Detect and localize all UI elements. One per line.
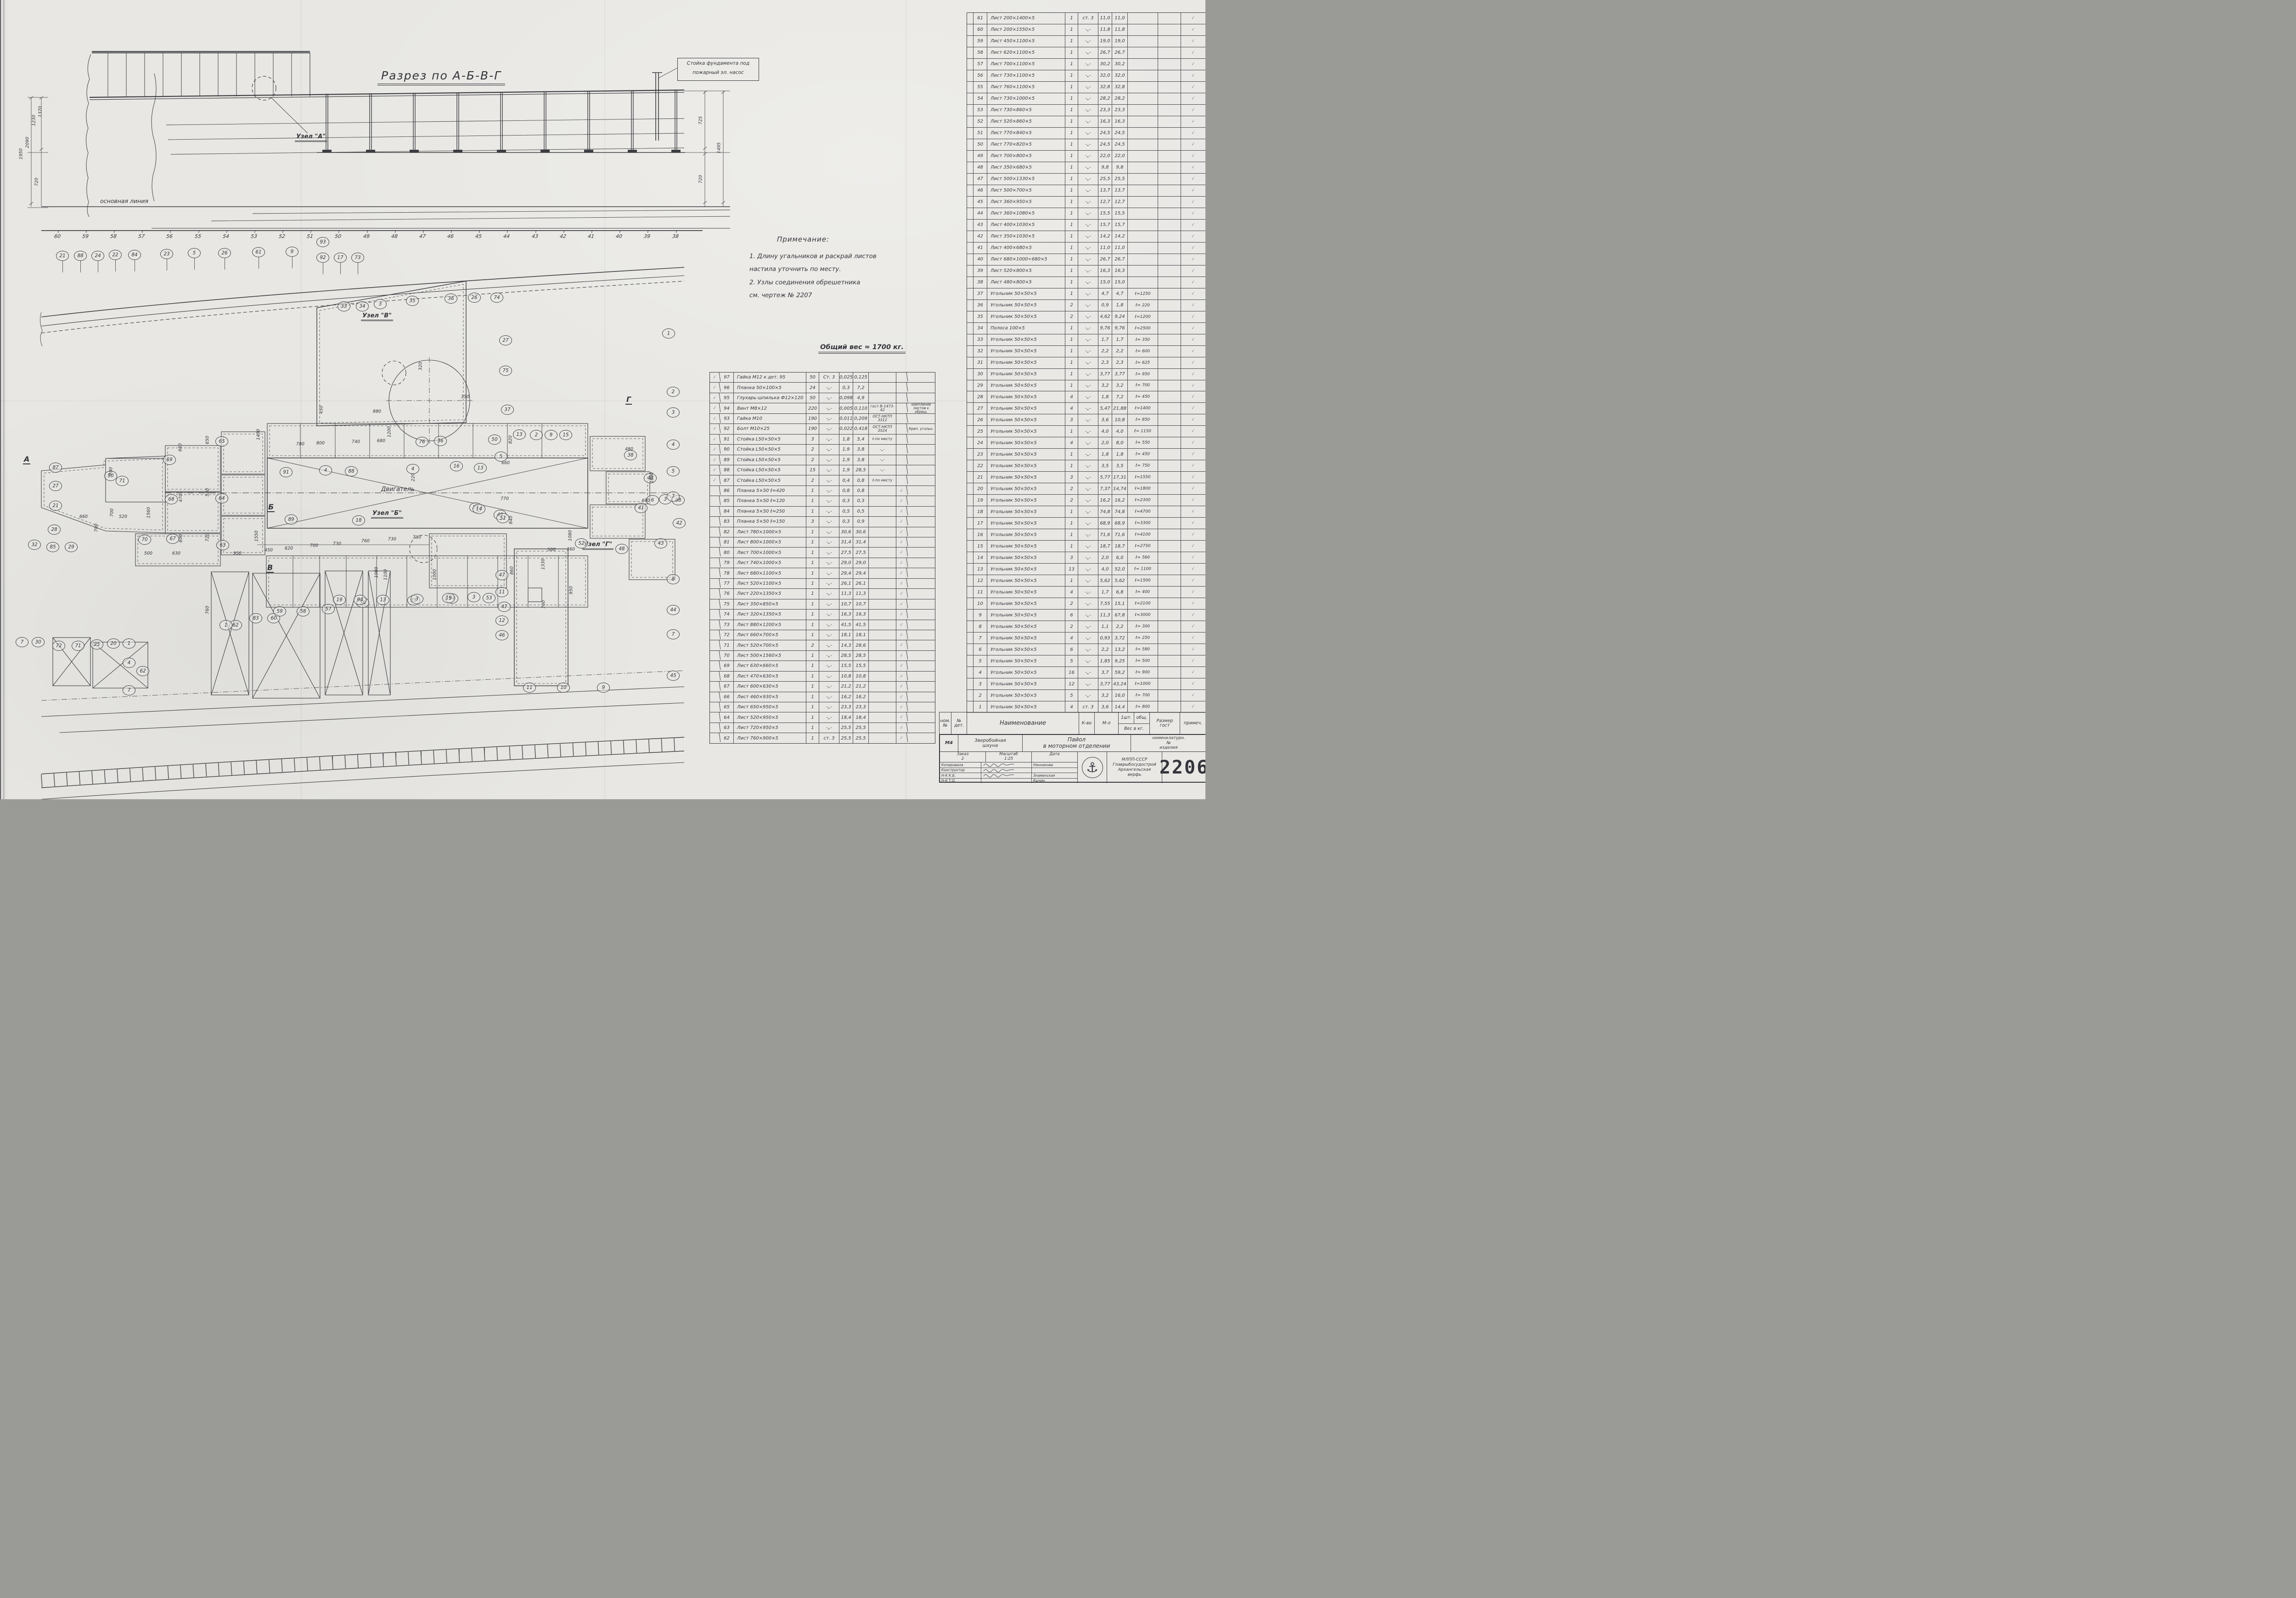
qty-cell: 1: [806, 579, 819, 588]
weight-one-cell: 26,7: [1098, 254, 1112, 265]
qty-cell: 1: [1065, 220, 1078, 231]
weight-one-cell: 25,5: [1098, 174, 1112, 185]
qty-cell: 1: [806, 682, 819, 691]
name-cell: Лист 650×950×5: [734, 702, 806, 712]
qty-cell: 1: [1065, 59, 1078, 70]
check-cell: ✓: [896, 536, 908, 548]
weight-total-cell: 3,2: [1112, 380, 1128, 391]
weight-total-cell: 14,4: [1112, 701, 1128, 712]
weight-total-cell: 25,5: [853, 723, 869, 733]
detail-number-cell: 76: [720, 589, 734, 599]
weight-one-cell: 1,1: [1098, 621, 1112, 632]
size-gost-cell: [1128, 93, 1158, 104]
part-callout: 64: [215, 493, 228, 503]
weight-total-cell: 26,1: [853, 579, 869, 588]
qty-cell: 1: [806, 507, 819, 516]
detail-number-cell: 53: [974, 105, 987, 116]
weight-one-cell: 2,2: [1098, 346, 1112, 357]
qty-cell: 1: [1065, 254, 1078, 265]
size-gost-cell: ℓ≈ 300: [1128, 621, 1158, 632]
size-gost-cell: ℓ≈ 560: [1128, 552, 1158, 563]
size-gost-cell: [1128, 231, 1158, 242]
note-cell: [1158, 678, 1181, 689]
weight-total-cell: 12,7: [1112, 197, 1128, 208]
weight-total-cell: 14,74: [1112, 483, 1128, 494]
weight-total-cell: 3,8: [853, 455, 869, 465]
check-cell: ✓: [896, 506, 908, 517]
name-cell: Лист 200×1400×5: [987, 13, 1065, 24]
detail-number-cell: 97: [720, 373, 734, 382]
size-gost-cell: ℓ≈1000: [1128, 678, 1158, 689]
detail-number-cell: 14: [974, 552, 987, 563]
detail-number-cell: 82: [720, 527, 734, 537]
qty-cell: 24: [806, 383, 819, 392]
part-callout: 19: [333, 595, 346, 605]
weight-total-cell: 22,0: [1112, 151, 1128, 162]
weight-total-cell: 3,77: [1112, 369, 1128, 380]
dimension-label: 720: [698, 175, 703, 183]
note-cell: [907, 507, 935, 516]
check-cell: ✓: [896, 701, 908, 713]
detail-number-cell: 64: [720, 712, 734, 722]
weight-one-cell: 16,3: [839, 610, 853, 619]
size-gost-cell: ℓ≈2750: [1128, 541, 1158, 552]
size-gost-cell: ℓ≈3000: [1128, 610, 1158, 621]
weight-one-cell: 3,77: [1098, 678, 1112, 689]
material-cell: -„-: [1078, 357, 1098, 368]
weight-total-cell: 5,4: [853, 435, 869, 444]
part-callout: 45: [667, 671, 680, 681]
note-cell: [1158, 357, 1181, 368]
material-cell: -„-: [819, 558, 839, 568]
dimension-label: 660: [178, 443, 183, 452]
qty-cell: 1: [1065, 449, 1078, 460]
name-cell: Стойка L50×50×5: [734, 455, 806, 465]
note-cell: [1158, 323, 1181, 334]
size-gost-cell: ℓ≈ 500: [1128, 655, 1158, 666]
weight-total-cell: 15,5: [853, 661, 869, 671]
dimension-label: 1080: [374, 567, 379, 578]
part-callout: 7: [16, 637, 28, 647]
name-cell: Лист 500×700×5: [987, 185, 1065, 196]
weight-one-cell: 15,5: [839, 661, 853, 671]
weight-total-cell: 0,8: [853, 475, 869, 485]
pos-cell: [967, 162, 974, 173]
part-callout: 36: [434, 436, 447, 446]
material-cell: -„-: [1078, 414, 1098, 425]
name-cell: Лист 400×680×5: [987, 243, 1065, 254]
detail-number-cell: 23: [974, 449, 987, 460]
size-gost-cell: [1128, 47, 1158, 58]
table-row: ✓ 95 Глухарь-шпилька Ф12×120 50 -„- 0,09…: [710, 393, 935, 403]
check-cell: ✓: [709, 434, 721, 445]
size-gost-cell: [869, 651, 896, 661]
note-line: 2. Узлы соединения обрешетника: [749, 276, 929, 289]
qty-cell: 1: [806, 548, 819, 557]
name-cell: Гайка М10: [734, 414, 806, 423]
qty-cell: 1: [806, 589, 819, 599]
size-gost-cell: [869, 373, 896, 382]
weight-total-cell: 23,3: [1112, 105, 1128, 116]
name-cell: Лист 400×1030×5: [987, 220, 1065, 231]
name-cell: Угольник 50×50×5: [987, 564, 1065, 575]
material-cell: -„-: [1078, 220, 1098, 231]
weight-total-cell: 13,7: [1112, 185, 1128, 196]
qty-cell: 1: [1065, 380, 1078, 391]
qty-cell: 1: [1065, 139, 1078, 150]
qty-cell: 1: [806, 599, 819, 609]
weight-one-cell: 1,8: [839, 435, 853, 444]
material-cell: -„-: [819, 712, 839, 722]
note-cell: [907, 579, 935, 588]
note-cell: [1158, 70, 1181, 81]
check-cell: ✓: [896, 661, 908, 672]
name-cell: Лист 780×1000×5: [734, 527, 806, 537]
pos-cell: [967, 667, 974, 678]
material-cell: -„-: [1078, 277, 1098, 288]
dimension-label: 620: [285, 546, 293, 551]
weight-total-cell: 3,5: [1112, 460, 1128, 471]
note-cell: [1158, 300, 1181, 311]
detail-number-cell: 22: [974, 460, 987, 471]
check-cell: ✓: [896, 485, 908, 497]
table-row: 84 Планка 5×50 ℓ≈250 1 -„- 0,5 0,5 ✓: [710, 507, 935, 517]
header-weight: 1шт. общ. Вес в кг.: [1119, 712, 1150, 734]
detail-number-cell: 46: [974, 185, 987, 196]
detail-number-cell: 40: [974, 254, 987, 265]
pos-cell: [967, 47, 974, 58]
qty-cell: 1: [1065, 128, 1078, 139]
pos-cell: [967, 300, 974, 311]
part-callout: 7: [667, 491, 680, 502]
dimension-label: 700: [310, 543, 318, 548]
note-cell: [1158, 483, 1181, 494]
material-cell: -„-: [819, 692, 839, 702]
check-cell: [709, 557, 721, 568]
dimension-label: 860: [510, 566, 515, 575]
weight-one-cell: 29,4: [839, 568, 853, 578]
part-callout: 71: [72, 641, 84, 651]
part-callout: 67: [166, 534, 179, 544]
material-cell: -„-: [1078, 621, 1098, 632]
signature: [981, 762, 1032, 768]
detail-number-cell: 79: [720, 558, 734, 568]
size-gost-cell: [869, 672, 896, 681]
note-cell: [907, 486, 935, 496]
part-callout: 92: [316, 253, 329, 263]
detail-number-cell: 73: [720, 620, 734, 630]
dimension-label: 725: [698, 116, 703, 124]
check-cell: ✓: [896, 599, 908, 610]
note-cell: [1158, 460, 1181, 471]
weight-total-cell: 31,4: [853, 537, 869, 547]
name-cell: Угольник 50×50×5: [987, 678, 1065, 689]
check-cell: [896, 403, 908, 414]
check-cell: ✓: [896, 722, 908, 734]
org-line: Архангельская: [1118, 768, 1151, 773]
pos-cell: [967, 231, 974, 242]
table-row: ✓ 90 Стойка L50×50×5 2 -„- 1,9 3,8 -„-: [710, 445, 935, 455]
material-cell: -„-: [1078, 36, 1098, 47]
weight-one-cell: 21,2: [839, 682, 853, 691]
weight-one-cell: 30,2: [1098, 59, 1112, 70]
size-gost-cell: [1128, 243, 1158, 254]
weight-total-cell: 29,0: [853, 558, 869, 568]
pos-cell: [967, 701, 974, 712]
detail-number-cell: 4: [974, 667, 987, 678]
check-cell: ✓: [896, 712, 908, 723]
qty-cell: 1: [1065, 93, 1078, 104]
size-gost-cell: ℓ≈1250: [1128, 288, 1158, 299]
note-cell: [907, 682, 935, 691]
weight-one-cell: 4,62: [1098, 311, 1112, 322]
table-row: 40 Лист 680×1000÷680×5 1 -„- 26,7 26,7 ✓: [967, 254, 1205, 265]
pos-cell: [967, 426, 974, 437]
weight-one-cell: 1,7: [1098, 587, 1112, 598]
note-cell: [1158, 632, 1181, 644]
check-cell: [709, 547, 721, 558]
weight-one-cell: 32,0: [1098, 70, 1112, 81]
part-callout: 69: [163, 455, 176, 465]
weight-one-cell: 0,5: [839, 507, 853, 516]
size-gost-cell: [869, 507, 896, 516]
part-callout: 4: [406, 464, 419, 474]
table-row: 74 Лист 320×1350×5 1 -„- 16,3 16,3 ✓: [710, 610, 935, 620]
material-cell: ст. 3: [1078, 701, 1098, 712]
weight-total-cell: 30,6: [853, 527, 869, 537]
qty-cell: 3: [806, 517, 819, 526]
size-gost-cell: ℓ≈ 350: [1128, 334, 1158, 345]
weight-total-cell: 0,8: [853, 486, 869, 496]
pos-cell: [967, 518, 974, 529]
check-cell: ✓: [709, 465, 721, 476]
name-cell: Лист 220×1350×5: [734, 589, 806, 599]
note-cell: [907, 610, 935, 619]
qty-cell: 1: [1065, 357, 1078, 368]
material-cell: -„-: [1078, 518, 1098, 529]
dimension-label: 500: [144, 551, 152, 556]
pos-cell: [967, 460, 974, 471]
note-cell: [907, 568, 935, 578]
dimension-label: 480: [625, 447, 633, 452]
pos-cell: [967, 391, 974, 402]
note-cell: [1158, 506, 1181, 517]
table-row: 59 Лист 450×1100×5 1 -„- 19,0 19,0 ✓: [967, 36, 1205, 47]
note-cell: [1158, 254, 1181, 265]
part-callout: 88: [74, 251, 87, 261]
table-row: 47 Лист 500×1330×5 1 -„- 25,5 25,5 ✓: [967, 174, 1205, 185]
qty-cell: 1: [806, 537, 819, 547]
note-cell: [1158, 334, 1181, 345]
table-row: 15 Угольник 50×50×5 1 -„- 18,7 18,7 ℓ≈27…: [967, 541, 1205, 552]
material-cell: -„-: [819, 517, 839, 526]
qty-cell: 1: [1065, 518, 1078, 529]
signature-row: Конструктор: [940, 768, 1077, 774]
part-callout: 3: [374, 299, 387, 309]
part-callout: 42: [673, 518, 686, 528]
detail-number-cell: 35: [974, 311, 987, 322]
name-cell: Лист 460×930×5: [734, 692, 806, 702]
table-row: 32 Угольник 50×50×5 1 -„- 2,2 2,2 ℓ≈ 600…: [967, 346, 1205, 357]
weight-total-cell: 15,1: [1112, 598, 1128, 609]
qty-cell: 6: [1065, 644, 1078, 655]
weight-one-cell: 3,6: [1098, 414, 1112, 425]
material-cell: -„-: [1078, 610, 1098, 621]
qty-cell: 4: [1065, 437, 1078, 448]
detail-number-cell: 69: [720, 661, 734, 671]
parts-table-right: 61 Лист 200×1400×5 1 ст. 3 11,0 11,0 ✓ 6…: [967, 12, 1205, 713]
material-cell: -„-: [819, 723, 839, 733]
material-cell: -„-: [819, 548, 839, 557]
material-cell: -„-: [819, 486, 839, 496]
check-cell: [709, 702, 721, 713]
part-callout: 76: [416, 437, 428, 447]
check-cell: [709, 712, 721, 723]
section-overlays: Узел "А" основная линия 60 59 58 57 56 5…: [14, 46, 937, 248]
pos-cell: [967, 472, 974, 483]
dimension-label: 1560: [146, 507, 152, 518]
qty-cell: 1: [1065, 288, 1078, 299]
material-cell: -„-: [1078, 529, 1098, 540]
material-cell: -„-: [1078, 185, 1098, 196]
material-cell: -„-: [819, 661, 839, 671]
weight-total-cell: 5,62: [1112, 575, 1128, 586]
detail-number-cell: 16: [974, 529, 987, 540]
note-cell: [1158, 667, 1181, 678]
qty-cell: 1: [1065, 47, 1078, 58]
header-name: Наименование: [967, 712, 1079, 734]
table-row: 62 Лист 760×900×5 1 ст. 3 25,5 25,5 ✓: [710, 733, 935, 743]
name-cell: Угольник 50×50×5: [987, 414, 1065, 425]
size-gost-cell: [1128, 174, 1158, 185]
size-gost-cell: ℓ-по месту: [869, 475, 896, 485]
weight-total-cell: 16,2: [853, 692, 869, 702]
check-cell: [896, 372, 908, 383]
pos-cell: [967, 174, 974, 185]
table-row: 11 Угольник 50×50×5 4 -„- 1,7 6,8 ℓ≈ 400…: [967, 587, 1205, 598]
qty-cell: 1: [1065, 151, 1078, 162]
weight-total-cell: 7,2: [1112, 391, 1128, 402]
check-cell: ✓: [709, 413, 721, 424]
section-letter-marker: В: [266, 563, 274, 573]
weight-total-cell: 13,2: [1112, 644, 1128, 655]
name-cell: Угольник 50×50×5: [987, 403, 1065, 414]
material-cell: -„-: [1078, 598, 1098, 609]
parts-table-mid: ✓ 97 Гайка М12 к дет. 95 50 Ст. 3 0,025 …: [709, 372, 935, 744]
check-cell: [709, 681, 721, 692]
detail-number-cell: 52: [974, 116, 987, 127]
part-callout: 57: [322, 604, 335, 614]
table-row: 55 Лист 760×1100×5 1 -„- 32,8 32,8 ✓: [967, 82, 1205, 93]
detail-number-cell: 6: [974, 644, 987, 655]
pos-cell: [967, 277, 974, 288]
table-row: 2 Угольник 50×50×5 5 -„- 3,2 16,0 ℓ≈ 700…: [967, 690, 1205, 701]
part-callout: 24: [91, 251, 104, 261]
qty-cell: 1: [806, 661, 819, 671]
table-row: 82 Лист 780×1000×5 1 -„- 30,6 30,6 ✓: [710, 527, 935, 537]
note-cell: [1158, 105, 1181, 116]
material-cell: -„-: [819, 651, 839, 661]
qty-cell: 1: [1065, 231, 1078, 242]
note-cell: [907, 723, 935, 733]
material-cell: -„-: [1078, 495, 1098, 506]
part-callout: 20: [107, 638, 120, 649]
part-callout: 12: [495, 615, 508, 626]
detail-number-cell: 81: [720, 537, 734, 547]
size-gost-cell: ℓ≈ 220: [1128, 300, 1158, 311]
dimension-label: 950: [233, 551, 242, 556]
note-cell: [907, 589, 935, 599]
table-row: 54 Лист 730×1000×5 1 -„- 28,2 28,2 ✓: [967, 93, 1205, 105]
check-cell: [896, 413, 908, 424]
table-row: 18 Угольник 50×50×5 1 -„- 74,8 74,8 ℓ≈47…: [967, 506, 1205, 518]
organization: МЛПП-СССРГлаврыбосудостройАрхангельскаяв…: [1107, 752, 1162, 783]
weight-one-cell: 23,3: [839, 702, 853, 712]
check-cell: ✓: [709, 423, 721, 435]
weight-one-cell: 10,7: [839, 599, 853, 609]
weight-total-cell: 14,2: [1112, 231, 1128, 242]
part-callout: 73: [351, 253, 364, 263]
qty-cell: 1: [1065, 529, 1078, 540]
size-gost-cell: ℓ≈ 750: [1128, 460, 1158, 471]
size-gost-cell: ℓ≈1400: [1128, 403, 1158, 414]
name-cell: Угольник 50×50×5: [987, 667, 1065, 678]
weight-total-cell: 68,9: [1112, 518, 1128, 529]
detail-number-cell: 12: [974, 575, 987, 586]
note-cell: [1158, 231, 1181, 242]
part-callout: 14: [473, 504, 485, 514]
weight-one-cell: 1,85: [1098, 655, 1112, 666]
qty-cell: 1: [1065, 116, 1078, 127]
weight-total-cell: 11,3: [853, 589, 869, 599]
pos-cell: [967, 483, 974, 494]
part-callout: 62: [136, 666, 149, 676]
detail-number-cell: 67: [720, 682, 734, 691]
part-callout: 29: [65, 542, 78, 552]
qty-cell: 2: [1065, 598, 1078, 609]
part-callout: 7: [123, 685, 135, 695]
material-cell: -„-: [1078, 564, 1098, 575]
qty-cell: 5: [1065, 655, 1078, 666]
weight-total-cell: 28,5: [853, 465, 869, 475]
check-cell: ✓: [896, 609, 908, 620]
qty-cell: 1: [806, 733, 819, 743]
size-gost-cell: [1128, 151, 1158, 162]
note-cell: [1158, 277, 1181, 288]
table-row: 33 Угольник 50×50×5 1 -„- 1,7 1,7 ℓ≈ 350…: [967, 334, 1205, 346]
name-cell: Угольник 50×50×5: [987, 529, 1065, 540]
pos-cell: [967, 128, 974, 139]
weight-one-cell: 68,9: [1098, 518, 1112, 529]
table-row: 52 Лист 520×860×5 1 -„- 16,3 16,3 ✓: [967, 116, 1205, 128]
check-cell: ✓: [896, 578, 908, 589]
pos-cell: [967, 265, 974, 277]
size-gost-cell: ℓ≈ 1150: [1128, 426, 1158, 437]
part-callout: 89: [285, 514, 298, 525]
pos-cell: [967, 208, 974, 219]
notes-block: Примечание: 1. Длину угальников и раскра…: [749, 235, 929, 302]
weight-one-cell: 3,6: [1098, 701, 1112, 712]
material-cell: -„-: [1078, 380, 1098, 391]
material-cell: -„-: [819, 475, 839, 485]
weight-one-cell: 1,9: [839, 445, 853, 454]
table-row: 37 Угольник 50×50×5 1 -„- 4,7 4,7 ℓ≈1250…: [967, 288, 1205, 300]
header-qty: К-во: [1079, 712, 1095, 734]
table-row: 42 Лист 350×1030×5 1 -„- 14,2 14,2 ✓: [967, 231, 1205, 243]
weight-total-cell: 27,5: [853, 548, 869, 557]
material-cell: -„-: [819, 445, 839, 454]
detail-number-cell: 49: [974, 151, 987, 162]
